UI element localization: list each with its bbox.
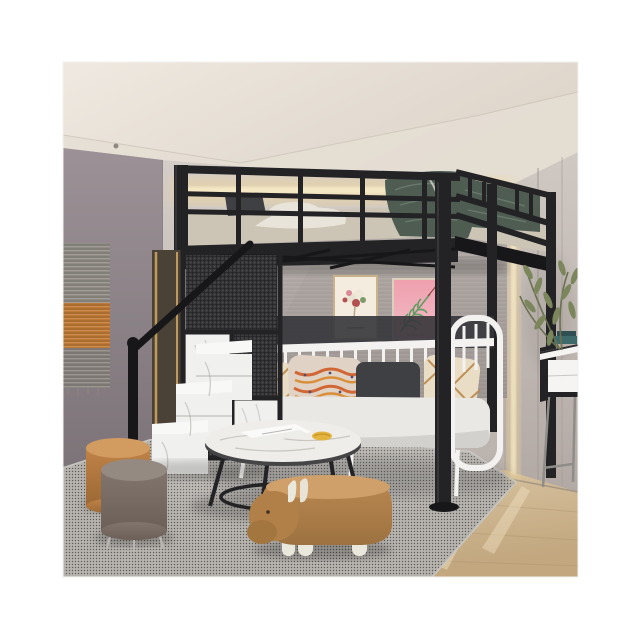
bed-post-rear-right <box>487 184 497 432</box>
pouf-taupe <box>94 459 174 552</box>
desk-books <box>554 331 577 344</box>
tapestry-art <box>63 243 110 396</box>
room-scene <box>0 0 640 640</box>
recessed-light <box>114 144 119 149</box>
hippo-stool <box>247 475 392 560</box>
product-photo <box>0 0 640 640</box>
